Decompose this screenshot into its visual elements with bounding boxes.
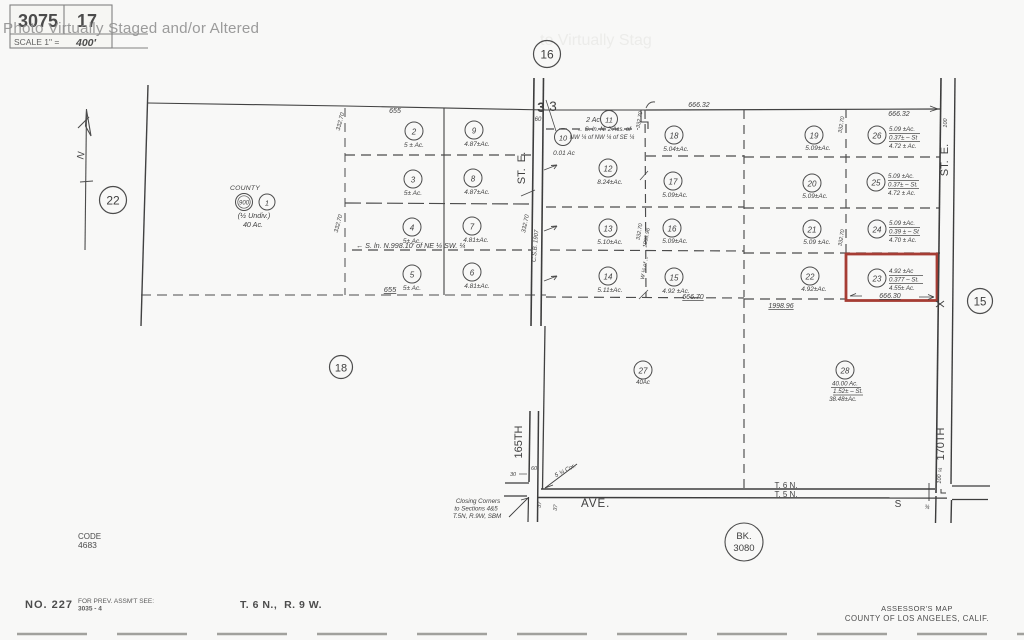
svg-text:5.10±Ac.: 5.10±Ac.: [597, 239, 623, 246]
svg-text:4: 4: [410, 224, 415, 233]
svg-text:5.09 ±Ac.: 5.09 ±Ac.: [888, 173, 914, 180]
svg-text:655: 655: [384, 285, 397, 294]
svg-text:S: S: [895, 499, 902, 510]
svg-text:16: 16: [540, 48, 554, 62]
svg-text:BK.: BK.: [736, 531, 751, 542]
svg-text:24: 24: [872, 226, 882, 235]
svg-text:COUNTY OF LOS ANGELES, CALIF.: COUNTY OF LOS ANGELES, CALIF.: [845, 614, 989, 623]
svg-text:to Virtually Stag: to Virtually Stag: [540, 32, 652, 49]
svg-text:20: 20: [807, 180, 817, 189]
svg-text:13: 13: [604, 225, 613, 234]
svg-text:0.39 ± – St: 0.39 ± – St: [889, 229, 919, 236]
svg-text:0.37± – St.: 0.37± – St.: [888, 182, 918, 189]
svg-text:6: 6: [470, 269, 475, 278]
svg-text:4.87±Ac.: 4.87±Ac.: [464, 141, 490, 148]
svg-text:5.09 ±Ac.: 5.09 ±Ac.: [803, 239, 831, 246]
svg-text:100: 100: [937, 473, 943, 483]
svg-text:¼: ¼: [938, 467, 944, 472]
svg-text:2: 2: [411, 128, 417, 137]
svg-text:COUNTY: COUNTY: [230, 185, 260, 192]
svg-text:← S. ln. N. 2 Acs. of: ← S. ln. N. 2 Acs. of: [577, 127, 632, 133]
svg-text:1.52± – St.: 1.52± – St.: [833, 388, 863, 395]
svg-text:ASSESSOR'S MAP: ASSESSOR'S MAP: [881, 604, 953, 613]
svg-text:655: 655: [389, 108, 401, 115]
svg-text:666.70: 666.70: [682, 294, 704, 301]
svg-text:5.09±Ac.: 5.09±Ac.: [662, 238, 688, 245]
svg-text:¾: ¾: [924, 505, 929, 511]
svg-text:22: 22: [106, 194, 120, 208]
svg-text:14: 14: [604, 273, 613, 282]
svg-text:40Ac: 40Ac: [636, 380, 650, 386]
svg-text:27: 27: [638, 367, 648, 376]
svg-text:23: 23: [872, 275, 882, 284]
svg-text:25: 25: [871, 179, 881, 188]
svg-text:3080: 3080: [733, 543, 754, 554]
svg-text:4683: 4683: [78, 540, 97, 550]
svg-text:170TH: 170TH: [935, 427, 947, 460]
svg-text:100: 100: [943, 117, 949, 127]
svg-text:5± Ac.: 5± Ac.: [403, 238, 421, 245]
svg-text:16: 16: [668, 225, 677, 234]
svg-text:8: 8: [471, 175, 476, 184]
svg-text:666.30: 666.30: [879, 293, 901, 300]
svg-text:T. 6 N., R. 9 W.: T. 6 N., R. 9 W.: [240, 599, 322, 611]
svg-text:60: 60: [535, 117, 542, 123]
svg-text:3: 3: [411, 176, 416, 185]
svg-text:19: 19: [810, 132, 819, 141]
svg-text:AVE.: AVE.: [581, 498, 610, 510]
svg-text:8.24±Ac.: 8.24±Ac.: [597, 179, 623, 186]
svg-text:4.81±Ac.: 4.81±Ac.: [463, 237, 489, 244]
svg-text:3035 - 4: 3035 - 4: [78, 606, 102, 613]
svg-text:5.09 ±Ac.: 5.09 ±Ac.: [889, 126, 915, 133]
svg-text:5.09±Ac.: 5.09±Ac.: [802, 193, 828, 200]
svg-text:1: 1: [265, 199, 269, 208]
svg-text:2 Ac: 2 Ac: [585, 117, 600, 124]
svg-text:5± Ac.: 5± Ac.: [403, 285, 421, 292]
svg-text:60: 60: [531, 466, 538, 472]
svg-text:4.70 ± Ac.: 4.70 ± Ac.: [889, 237, 917, 244]
svg-text:1998.96: 1998.96: [768, 303, 793, 310]
svg-text:900: 900: [239, 201, 250, 207]
svg-text:18: 18: [670, 132, 679, 141]
svg-text:5.04±Ac.: 5.04±Ac.: [663, 146, 689, 153]
svg-text:11: 11: [605, 116, 613, 125]
svg-text:FOR PREV. ASSM'T SEE:: FOR PREV. ASSM'T SEE:: [78, 598, 154, 605]
svg-text:18: 18: [335, 363, 347, 375]
svg-text:SCALE 1" =: SCALE 1" =: [14, 37, 59, 47]
svg-text:666.32: 666.32: [888, 111, 910, 118]
svg-text:5: 5: [410, 271, 415, 280]
svg-text:15: 15: [670, 274, 679, 283]
svg-text:26: 26: [872, 132, 882, 141]
svg-text:5.09 ±Ac.: 5.09 ±Ac.: [889, 220, 915, 227]
svg-text:165TH: 165TH: [513, 425, 525, 458]
svg-text:40 Ac.: 40 Ac.: [243, 220, 263, 229]
svg-text:Closing Corners: Closing Corners: [456, 498, 500, 505]
svg-text:38.48±Ac.: 38.48±Ac.: [829, 396, 857, 403]
svg-text:(½ Undiv.): (½ Undiv.): [238, 211, 271, 220]
svg-text:0.01 Ac: 0.01 Ac: [553, 150, 576, 157]
svg-text:4.55± Ac.: 4.55± Ac.: [889, 285, 915, 292]
svg-text:4.87±Ac.: 4.87±Ac.: [464, 189, 490, 196]
svg-text:to Sections 4&5: to Sections 4&5: [454, 506, 498, 513]
svg-text:Photo Virtually Staged and/or: Photo Virtually Staged and/or Altered: [3, 20, 259, 37]
svg-text:5± Ac.: 5± Ac.: [404, 190, 422, 197]
svg-text:ST. E.: ST. E.: [939, 144, 951, 176]
svg-text:5.11±Ac.: 5.11±Ac.: [597, 287, 622, 294]
svg-text:666.32: 666.32: [688, 102, 710, 109]
svg-text:17: 17: [669, 178, 678, 187]
svg-text:T.5N, R.9W, SBM: T.5N, R.9W, SBM: [453, 513, 502, 520]
svg-text:5 ± Ac.: 5 ± Ac.: [404, 142, 424, 149]
svg-text:15: 15: [974, 297, 987, 309]
svg-text:4.72 ± Ac.: 4.72 ± Ac.: [889, 143, 917, 150]
svg-text:ST. E.: ST. E.: [516, 152, 528, 184]
svg-text:9: 9: [472, 127, 477, 136]
svg-text:400′: 400′: [75, 37, 97, 49]
svg-text:3: 3: [537, 100, 545, 115]
svg-text:0.377 – St.: 0.377 – St.: [889, 277, 919, 284]
svg-text:22: 22: [805, 273, 815, 282]
svg-text:5.09±Ac.: 5.09±Ac.: [662, 192, 688, 199]
svg-text:0.37± – St: 0.37± – St: [889, 135, 917, 142]
svg-text:28: 28: [840, 367, 850, 376]
svg-text:30: 30: [510, 472, 517, 478]
svg-text:NO. 227: NO. 227: [25, 599, 73, 611]
svg-text:4.92 ±Ac: 4.92 ±Ac: [889, 268, 914, 275]
svg-text:4.92±Ac.: 4.92±Ac.: [801, 286, 827, 293]
svg-text:10: 10: [559, 134, 568, 143]
svg-text:40.00 Ac.: 40.00 Ac.: [832, 381, 858, 388]
svg-text:21: 21: [807, 226, 817, 235]
svg-text:NW ¼ of NW ¼ of SE ¼: NW ¼ of NW ¼ of SE ¼: [570, 135, 635, 141]
svg-text:T. 5 N.: T. 5 N.: [774, 490, 797, 499]
svg-text:3: 3: [549, 99, 557, 114]
svg-text:4.81±Ac.: 4.81±Ac.: [464, 283, 490, 290]
svg-text:4.72 ± Ac.: 4.72 ± Ac.: [888, 190, 916, 197]
svg-text:12: 12: [604, 165, 613, 174]
svg-text:T. 6 N.: T. 6 N.: [774, 481, 797, 490]
svg-text:5.09±Ac.: 5.09±Ac.: [805, 145, 831, 152]
svg-text:7: 7: [470, 223, 475, 232]
